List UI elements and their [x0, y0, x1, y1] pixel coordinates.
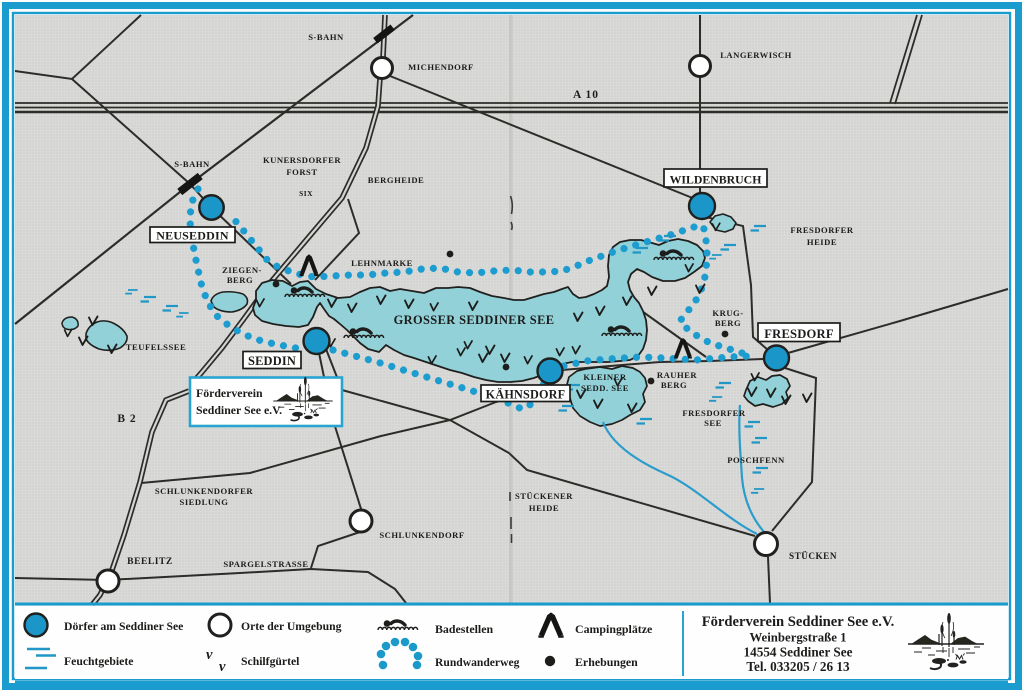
svg-text:RAUHER: RAUHER	[657, 370, 698, 380]
svg-text:MICHENDORF: MICHENDORF	[408, 62, 474, 72]
svg-text:14554 Seddiner See: 14554 Seddiner See	[744, 645, 853, 660]
svg-text:WILDENBRUCH: WILDENBRUCH	[670, 173, 762, 187]
svg-text:SPARGELSTRASSE: SPARGELSTRASSE	[223, 559, 308, 569]
svg-text:Erhebungen: Erhebungen	[575, 655, 638, 669]
svg-text:Seddiner See e.V.: Seddiner See e.V.	[196, 403, 282, 417]
svg-text:POSCHFENN: POSCHFENN	[727, 455, 785, 465]
svg-text:v: v	[206, 647, 213, 663]
svg-text:STÜCKEN: STÜCKEN	[789, 551, 837, 561]
svg-text:BERG: BERG	[715, 318, 741, 328]
svg-text:NEUSEDDIN: NEUSEDDIN	[156, 229, 229, 243]
svg-text:SCHLUNKENDORF: SCHLUNKENDORF	[379, 530, 464, 540]
svg-text:SIX: SIX	[299, 189, 313, 198]
svg-text:KRUG-: KRUG-	[712, 308, 743, 318]
svg-text:FRESDORFER: FRESDORFER	[682, 408, 746, 418]
svg-text:BERG: BERG	[661, 380, 687, 390]
svg-text:Schilfgürtel: Schilfgürtel	[241, 655, 300, 668]
svg-text:Dörfer am Seddiner See: Dörfer am Seddiner See	[64, 620, 183, 633]
svg-text:A 10: A 10	[573, 89, 599, 101]
svg-text:BERGHEIDE: BERGHEIDE	[368, 175, 425, 185]
svg-text:SIEDLUNG: SIEDLUNG	[180, 497, 229, 507]
svg-text:Förderverein Seddiner See e.V.: Förderverein Seddiner See e.V.	[702, 614, 895, 630]
svg-text:Badestellen: Badestellen	[435, 622, 494, 636]
svg-text:Förderverein: Förderverein	[196, 386, 263, 400]
svg-text:SEE: SEE	[704, 418, 722, 428]
svg-text:BEELITZ: BEELITZ	[127, 556, 173, 567]
svg-text:Rundwanderweg: Rundwanderweg	[435, 656, 520, 669]
svg-text:HEIDE: HEIDE	[807, 237, 837, 247]
svg-text:TEUFELSSEE: TEUFELSSEE	[126, 342, 186, 352]
svg-text:Tel. 033205 / 26 13: Tel. 033205 / 26 13	[746, 659, 850, 674]
svg-text:ZIEGEN-: ZIEGEN-	[222, 265, 262, 275]
svg-text:FRESDORF: FRESDORF	[764, 327, 834, 341]
svg-text:LANGERWISCH: LANGERWISCH	[720, 50, 792, 60]
svg-text:SEDD. SEE: SEDD. SEE	[581, 383, 629, 393]
svg-text:KÄHNSDORF: KÄHNSDORF	[486, 388, 566, 402]
svg-text:Orte der Umgebung: Orte der Umgebung	[241, 620, 342, 633]
svg-text:Feuchtgebiete: Feuchtgebiete	[64, 655, 133, 668]
svg-text:SCHLUNKENDORFER: SCHLUNKENDORFER	[155, 486, 254, 496]
svg-text:B 2: B 2	[117, 413, 136, 425]
svg-text:KLEINER: KLEINER	[583, 372, 626, 382]
svg-text:FORST: FORST	[286, 167, 317, 177]
svg-text:BERG: BERG	[227, 275, 253, 285]
svg-text:v: v	[219, 659, 226, 675]
svg-text:GROSSER SEDDINER SEE: GROSSER SEDDINER SEE	[394, 313, 555, 327]
svg-text:Weinbergstraße 1: Weinbergstraße 1	[749, 631, 846, 645]
svg-text:SEDDIN: SEDDIN	[248, 354, 296, 368]
svg-text:S-BAHN: S-BAHN	[308, 32, 344, 42]
svg-text:KUNERSDORFER: KUNERSDORFER	[263, 155, 341, 165]
svg-text:S-BAHN: S-BAHN	[174, 159, 210, 169]
svg-text:HEIDE: HEIDE	[529, 503, 559, 513]
svg-text:LEHNMARKE: LEHNMARKE	[351, 258, 413, 268]
svg-text:Campingplätze: Campingplätze	[575, 622, 652, 636]
svg-text:FRESDORFER: FRESDORFER	[790, 225, 854, 235]
svg-text:STÜCKENER: STÜCKENER	[515, 491, 573, 501]
